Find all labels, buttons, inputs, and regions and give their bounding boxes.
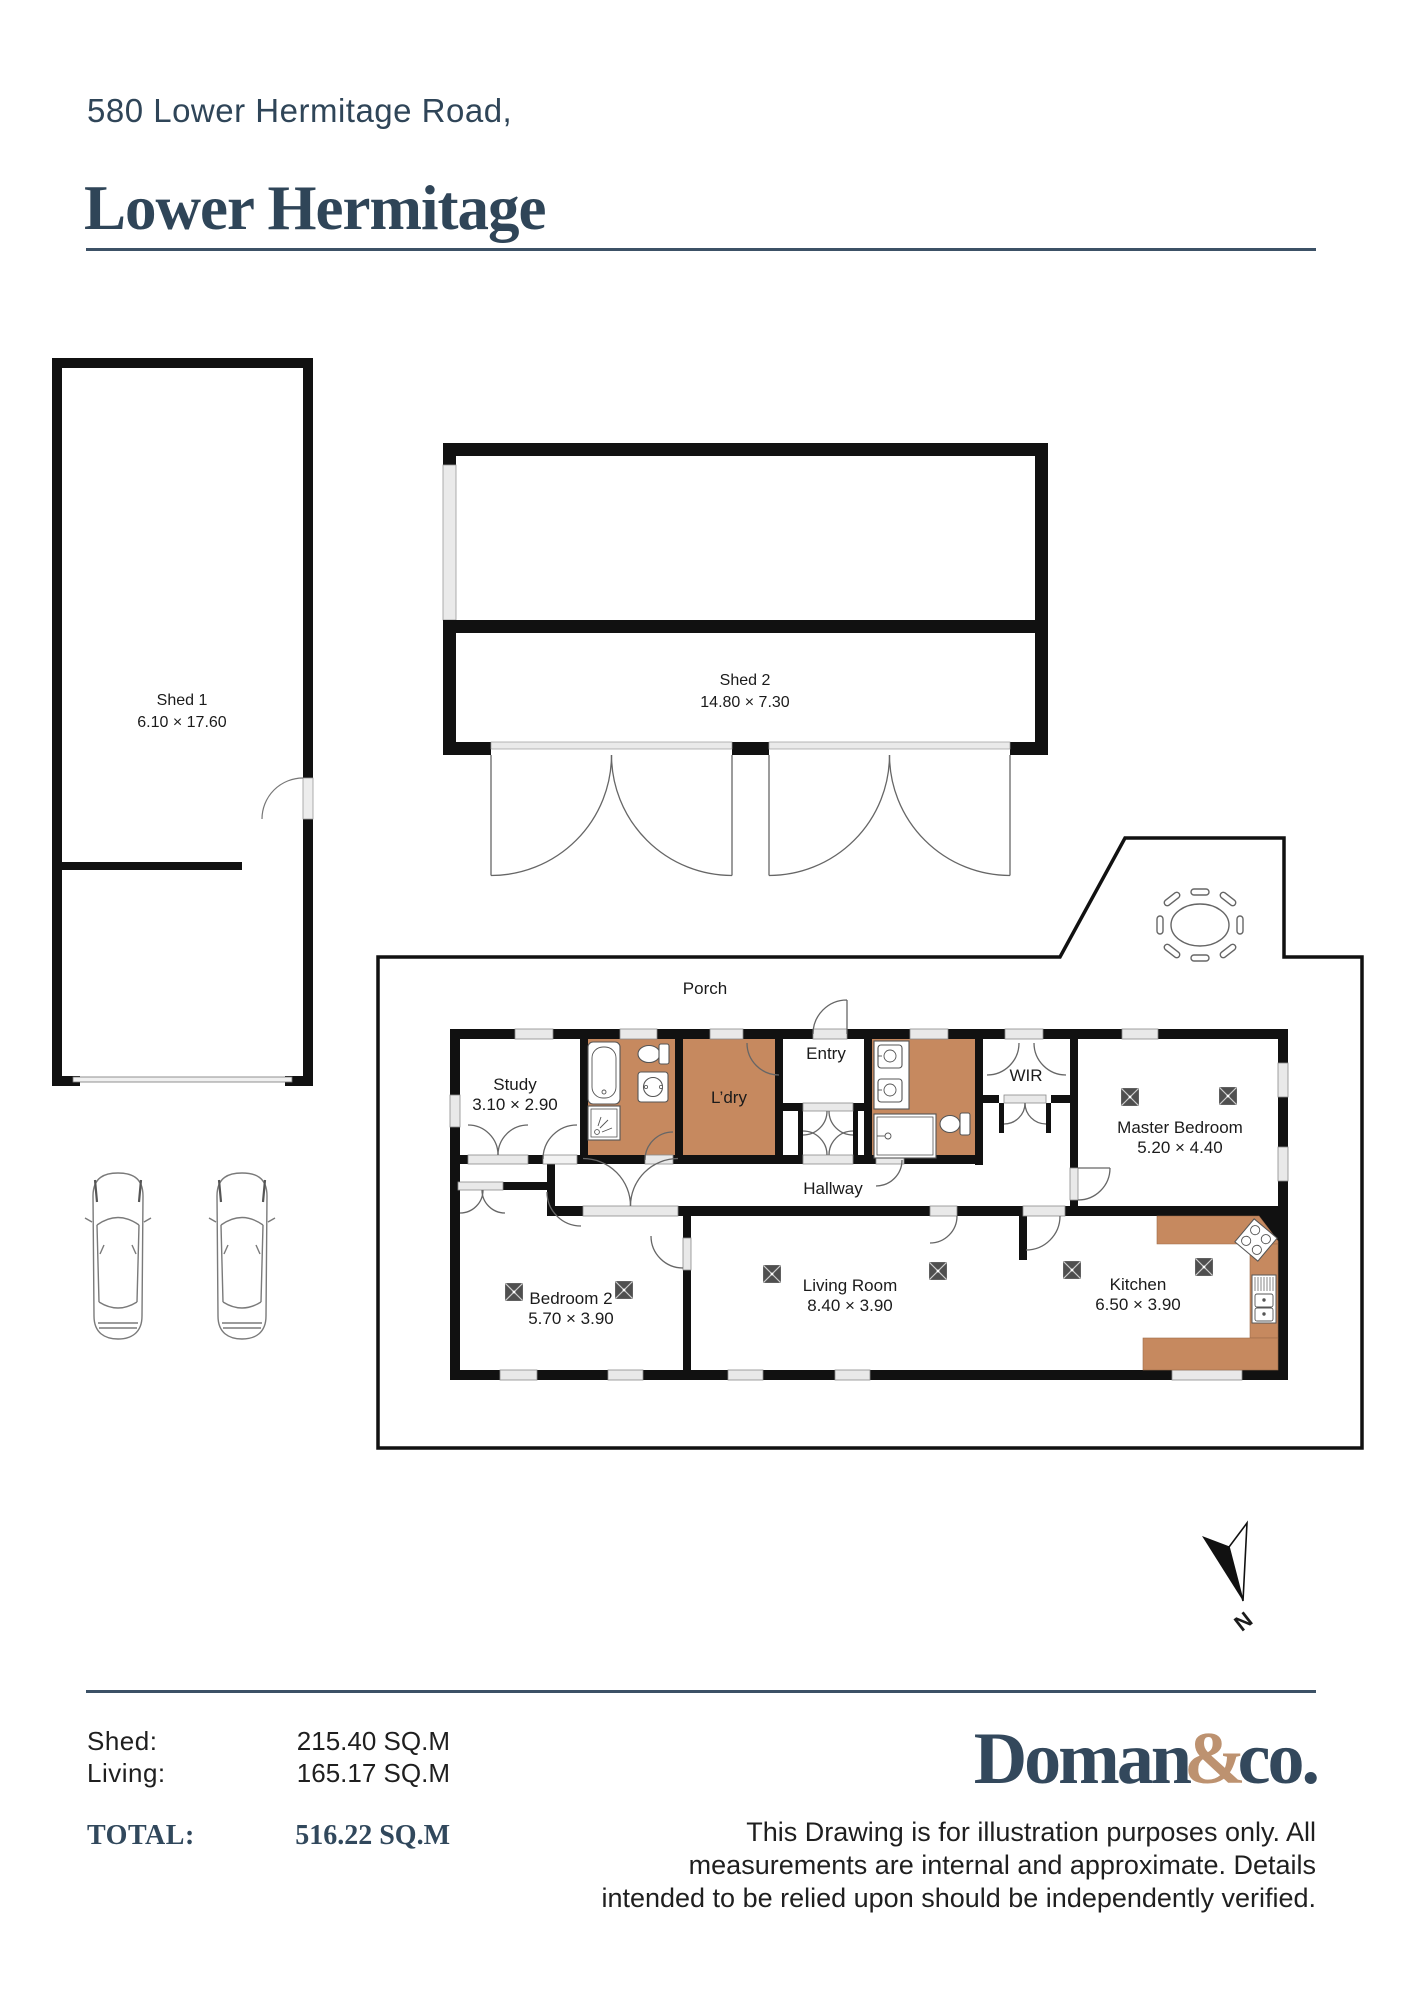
entry-label: Entry — [806, 1044, 846, 1063]
toilet — [940, 1116, 960, 1133]
living-dims: 8.40 × 3.90 — [807, 1296, 893, 1315]
bedroom2-label: Bedroom 2 — [529, 1289, 612, 1308]
house: Study 3.10 × 2.90 L’dry Entry WIR Master… — [450, 1000, 1288, 1380]
shed1-dims: 6.10 × 17.60 — [137, 714, 227, 731]
footer-divider — [86, 1690, 1316, 1693]
shed2-double-doors — [491, 755, 1010, 876]
disclaimer-line: This Drawing is for illustration purpose… — [86, 1816, 1316, 1849]
master-dims: 5.20 × 4.40 — [1137, 1138, 1223, 1157]
logo-part2: co. — [1238, 1718, 1317, 1800]
hallway-label: Hallway — [803, 1179, 863, 1198]
floorplan-page: 580 Lower Hermitage Road, Lower Hermitag… — [0, 0, 1414, 2000]
logo-ampersand: & — [1184, 1718, 1243, 1800]
shed2-dims: 14.80 × 7.30 — [700, 694, 790, 711]
car-top-view — [85, 1173, 275, 1339]
shed2: Shed 2 14.80 × 7.30 — [443, 443, 1048, 876]
shed1-roller-door — [73, 1077, 292, 1082]
kitchen-dims: 6.50 × 3.90 — [1095, 1295, 1181, 1314]
living-label: Living Room — [803, 1276, 898, 1295]
disclaimer-line: measurements are internal and approximat… — [86, 1849, 1316, 1882]
agency-logo: Doman&co. — [86, 1722, 1317, 1796]
north-arrow-icon: N — [1202, 1523, 1257, 1636]
study-label: Study — [493, 1075, 537, 1094]
shed2-label: Shed 2 — [720, 672, 771, 689]
door-arcs — [460, 1000, 1110, 1268]
wir-label: WIR — [1009, 1066, 1042, 1085]
disclaimer: This Drawing is for illustration purpose… — [86, 1816, 1316, 1915]
study-dims: 3.10 × 2.90 — [472, 1095, 558, 1114]
kitchen-sink — [1252, 1275, 1276, 1323]
bedroom2-dims: 5.70 × 3.90 — [528, 1309, 614, 1328]
disclaimer-line: intended to be relied upon should be ind… — [86, 1882, 1316, 1915]
toilet — [638, 1046, 660, 1063]
master-label: Master Bedroom — [1117, 1118, 1243, 1137]
shed1-label: Shed 1 — [157, 692, 208, 709]
shed1: Shed 1 6.10 × 17.60 — [52, 358, 313, 1086]
dining-table — [1157, 889, 1243, 961]
north-label: N — [1229, 1607, 1257, 1636]
kitchen-label: Kitchen — [1110, 1275, 1167, 1294]
porch-label: Porch — [683, 979, 727, 998]
ldry-label: L’dry — [711, 1088, 747, 1107]
floorplan-drawing: Shed 1 6.10 × 17.60 Shed 2 — [0, 0, 1414, 2000]
shed2-side-opening — [443, 465, 456, 620]
logo-part1: Doman — [974, 1718, 1189, 1800]
shed1-door — [303, 778, 313, 819]
